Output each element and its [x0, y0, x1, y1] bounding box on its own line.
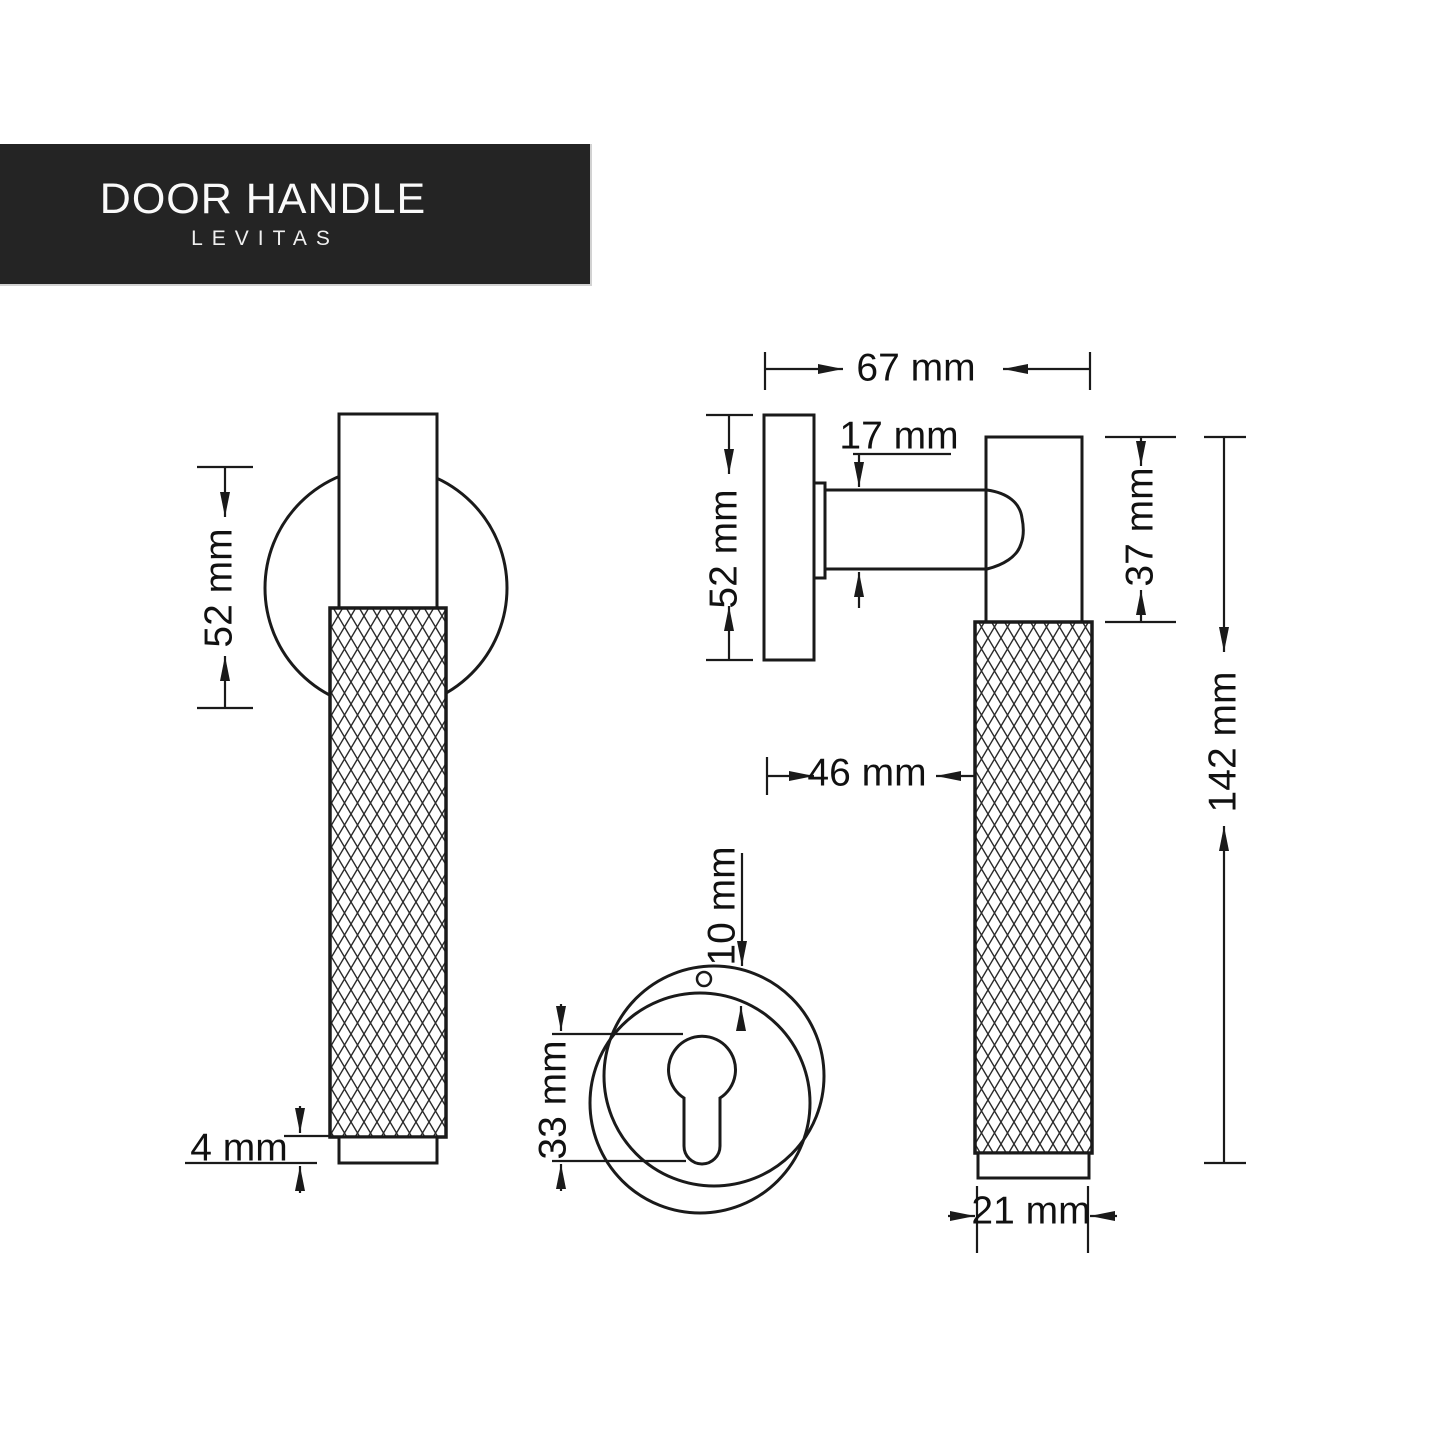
dimension-drawing: 52 mm 4 mm 67 mm [0, 0, 1445, 1445]
dim-label-cap-height: 4 mm [190, 1127, 288, 1170]
front-handle-stem [339, 414, 437, 608]
dim-side-total-depth: 67 mm [765, 347, 1090, 391]
dim-grip-clearance: 46 mm [767, 752, 975, 796]
dim-front-rosette-diameter: 52 mm [197, 467, 253, 708]
escutcheon-pin-hole [697, 972, 711, 986]
dim-label-upper-section: 37 mm [1119, 467, 1162, 586]
dim-side-spindle: 17 mm [839, 415, 958, 609]
handle-elevation-view: 37 mm 142 mm 21 mm [948, 437, 1246, 1253]
front-end-cap [339, 1137, 437, 1163]
dim-label-total-length: 142 mm [1202, 672, 1245, 813]
front-view: 52 mm 4 mm [185, 414, 507, 1193]
handle-knurled-grip [975, 622, 1092, 1153]
dim-label-front-rosette: 52 mm [198, 528, 241, 647]
dim-grip-diameter: 21 mm [948, 1186, 1117, 1253]
escutcheon-view: 33 mm 10 mm [532, 846, 825, 1213]
dim-handle-total-length: 142 mm [1202, 437, 1247, 1163]
front-knurled-grip [330, 608, 446, 1137]
dim-label-grip-diameter: 21 mm [971, 1190, 1090, 1233]
dim-label-spindle: 17 mm [839, 415, 958, 458]
escutcheon-plate-back-circle [604, 966, 824, 1186]
escutcheon-plate-front-circle [590, 993, 810, 1213]
dim-label-keyhole-height: 33 mm [532, 1040, 575, 1159]
euro-keyhole-cutout [669, 1036, 736, 1164]
dim-label-side-rosette: 52 mm [703, 489, 746, 608]
dim-handle-upper-section: 37 mm [1105, 437, 1176, 622]
dim-label-grip-clearance: 46 mm [807, 752, 926, 795]
side-spindle-collar [814, 483, 825, 578]
dim-side-rosette-height: 52 mm [703, 415, 754, 660]
handle-end-cap [978, 1153, 1089, 1178]
dim-label-plate-thickness: 10 mm [701, 846, 744, 965]
technical-drawing-page: DOOR HANDLE LEVITAS [0, 0, 1445, 1445]
handle-upper-body [986, 437, 1082, 622]
dim-label-total-depth: 67 mm [856, 347, 975, 390]
dim-front-cap-height: 4 mm [185, 1106, 331, 1193]
side-rosette-plate [764, 415, 814, 660]
